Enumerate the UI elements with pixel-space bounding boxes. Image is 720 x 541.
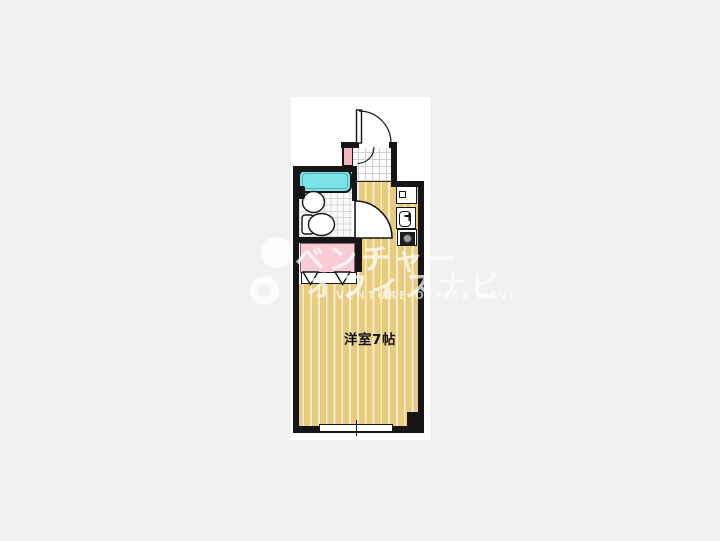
- cabinet-detail-icon: [399, 191, 406, 198]
- genkan-step-line: [357, 181, 391, 182]
- room-size-label: 洋室7帖: [329, 328, 411, 348]
- window-mullion: [356, 420, 358, 436]
- floorplan-image: 洋室7帖 ベンチャー オフィスナビ VENTURE OFFICE NAVI: [0, 0, 720, 541]
- kitchen-cabinet-icon: [396, 185, 417, 204]
- kitchen-sink-icon: [396, 207, 416, 229]
- bathtub-inner-line: [302, 173, 348, 189]
- watermark-text-3: VENTURE OFFICE NAVI: [336, 290, 516, 302]
- watermark-logo-icon: [261, 237, 292, 268]
- wall-segment: [293, 166, 299, 433]
- wall-segment: [418, 181, 424, 433]
- bathtub-icon: [298, 169, 352, 193]
- wall-segment: [341, 142, 359, 148]
- watermark-logo-ring-icon: [250, 276, 279, 305]
- wall-segment: [352, 166, 357, 201]
- sink-basin-icon: [399, 211, 411, 227]
- pillar: [407, 412, 424, 433]
- wall-segment: [293, 166, 357, 172]
